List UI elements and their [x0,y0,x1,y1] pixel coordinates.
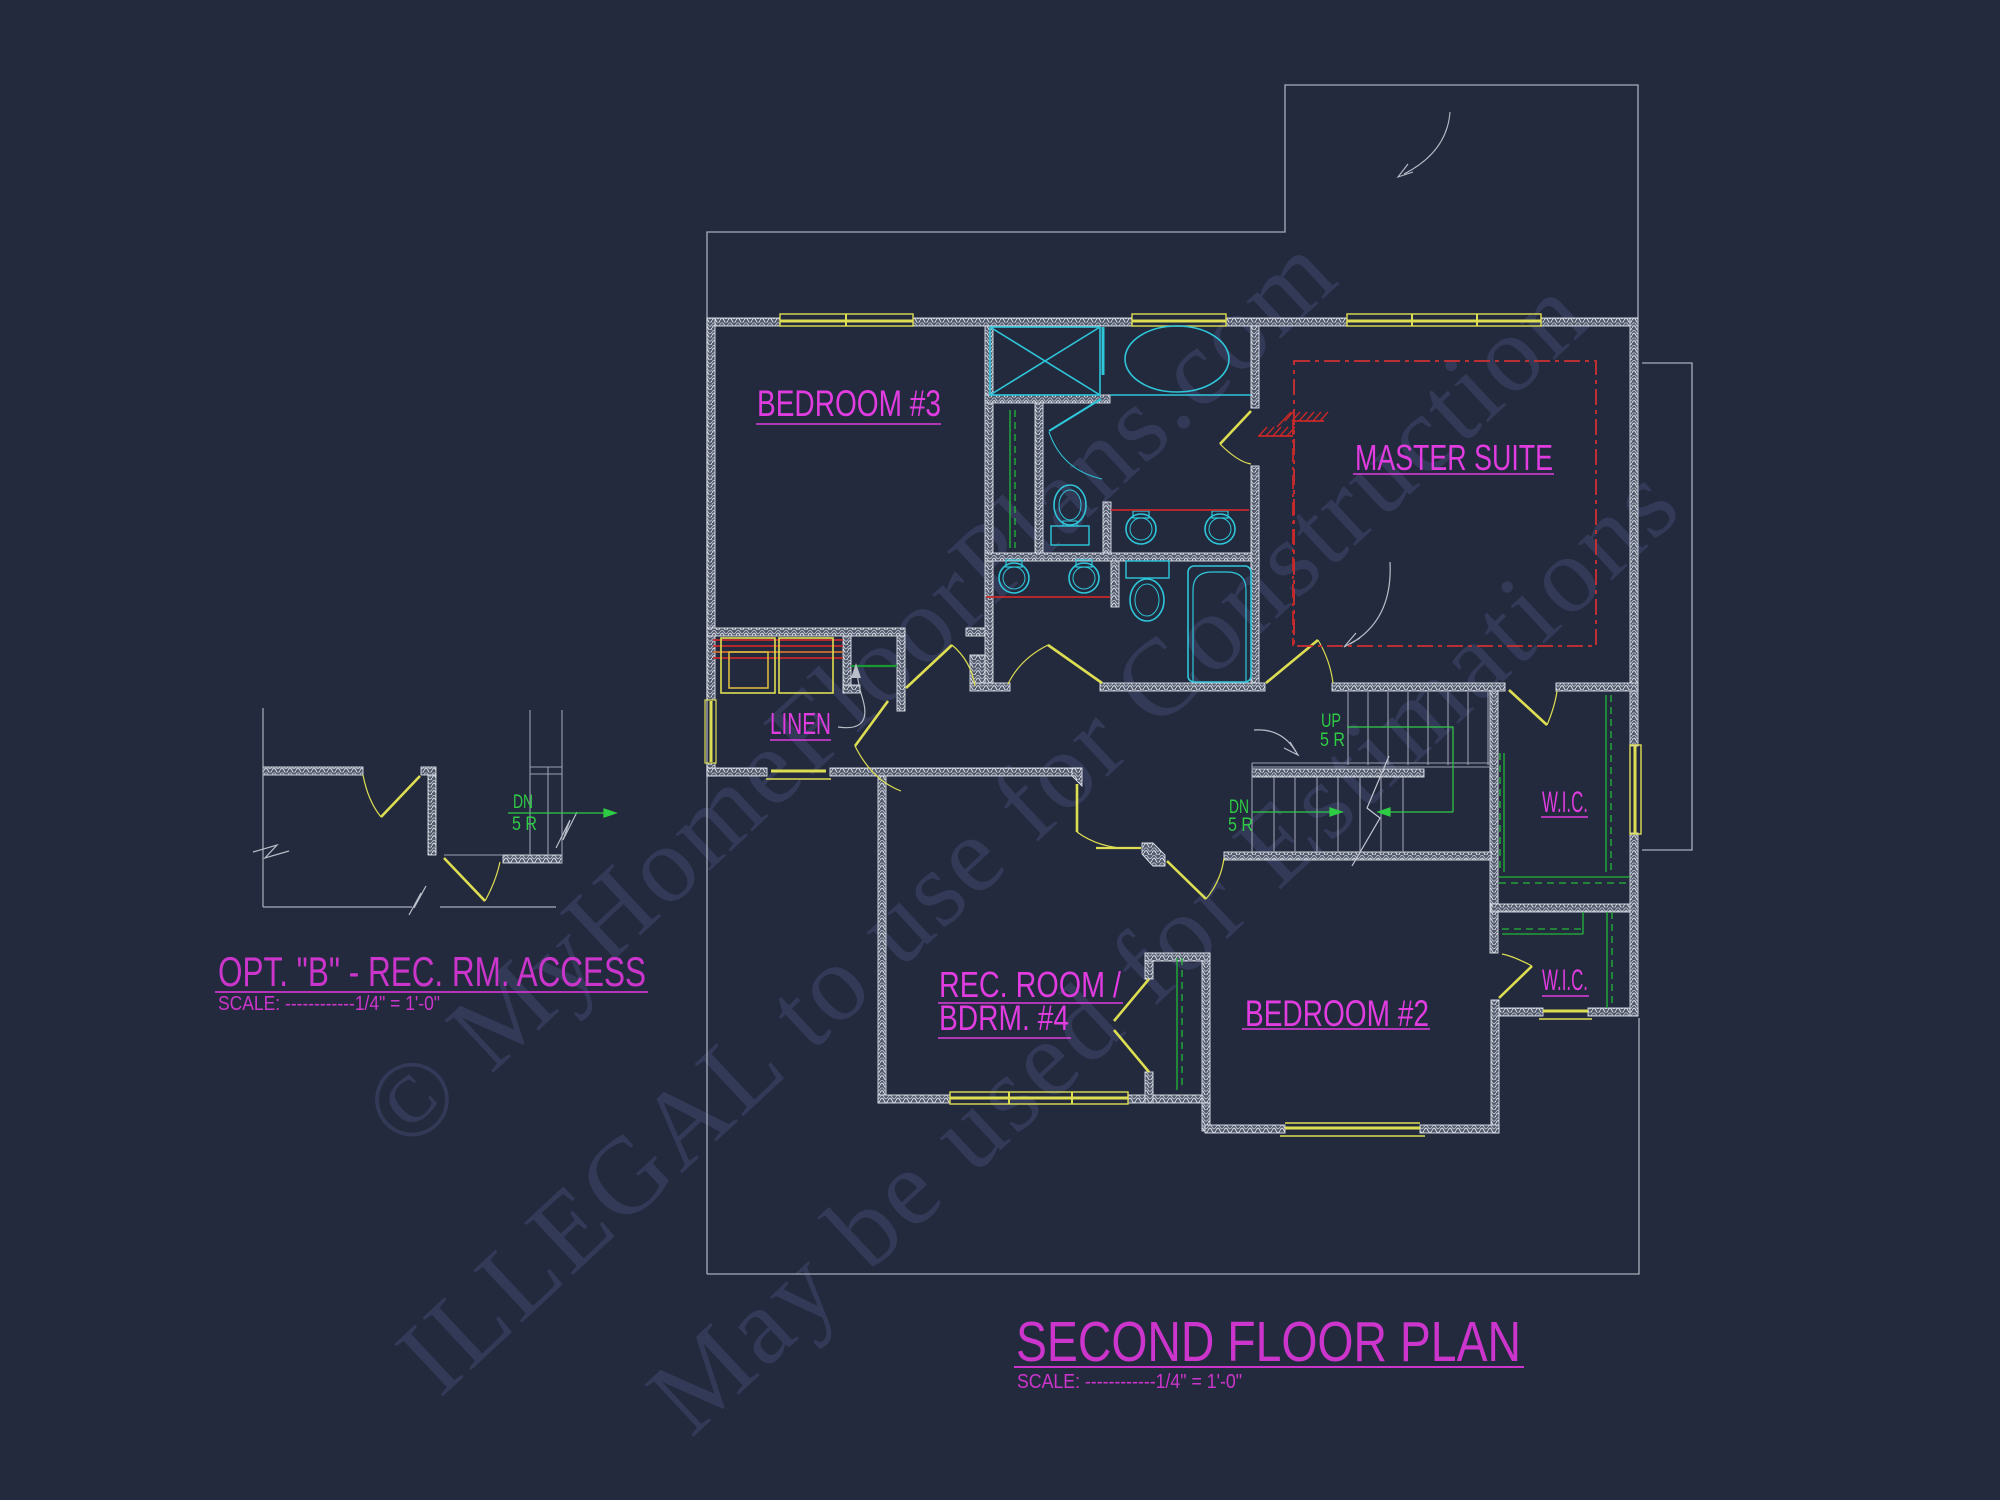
svg-text:LINEN: LINEN [770,706,831,741]
svg-text:5 R: 5 R [1320,730,1345,751]
svg-text:BEDROOM #3: BEDROOM #3 [757,383,941,424]
svg-text:5 R: 5 R [1228,815,1253,836]
svg-text:5 R: 5 R [512,814,537,835]
svg-text:DN: DN [513,792,533,813]
svg-text:OPT. "B" - REC. RM. ACCESS: OPT. "B" - REC. RM. ACCESS [218,948,646,995]
svg-text:W.I.C.: W.I.C. [1542,964,1588,997]
svg-text:MASTER SUITE: MASTER SUITE [1355,437,1553,478]
svg-text:SECOND FLOOR PLAN: SECOND FLOOR PLAN [1016,1310,1521,1374]
svg-text:SCALE: ------------1/4" = 1'-0: SCALE: ------------1/4" = 1'-0" [1017,1371,1242,1393]
svg-text:SCALE: ------------1/4" = 1'-0: SCALE: ------------1/4" = 1'-0" [218,993,440,1015]
svg-text:W.I.C.: W.I.C. [1542,786,1588,819]
svg-text:BEDROOM #2: BEDROOM #2 [1245,993,1429,1034]
svg-text:BDRM. #4: BDRM. #4 [939,999,1069,1038]
svg-text:UP: UP [1321,711,1341,732]
